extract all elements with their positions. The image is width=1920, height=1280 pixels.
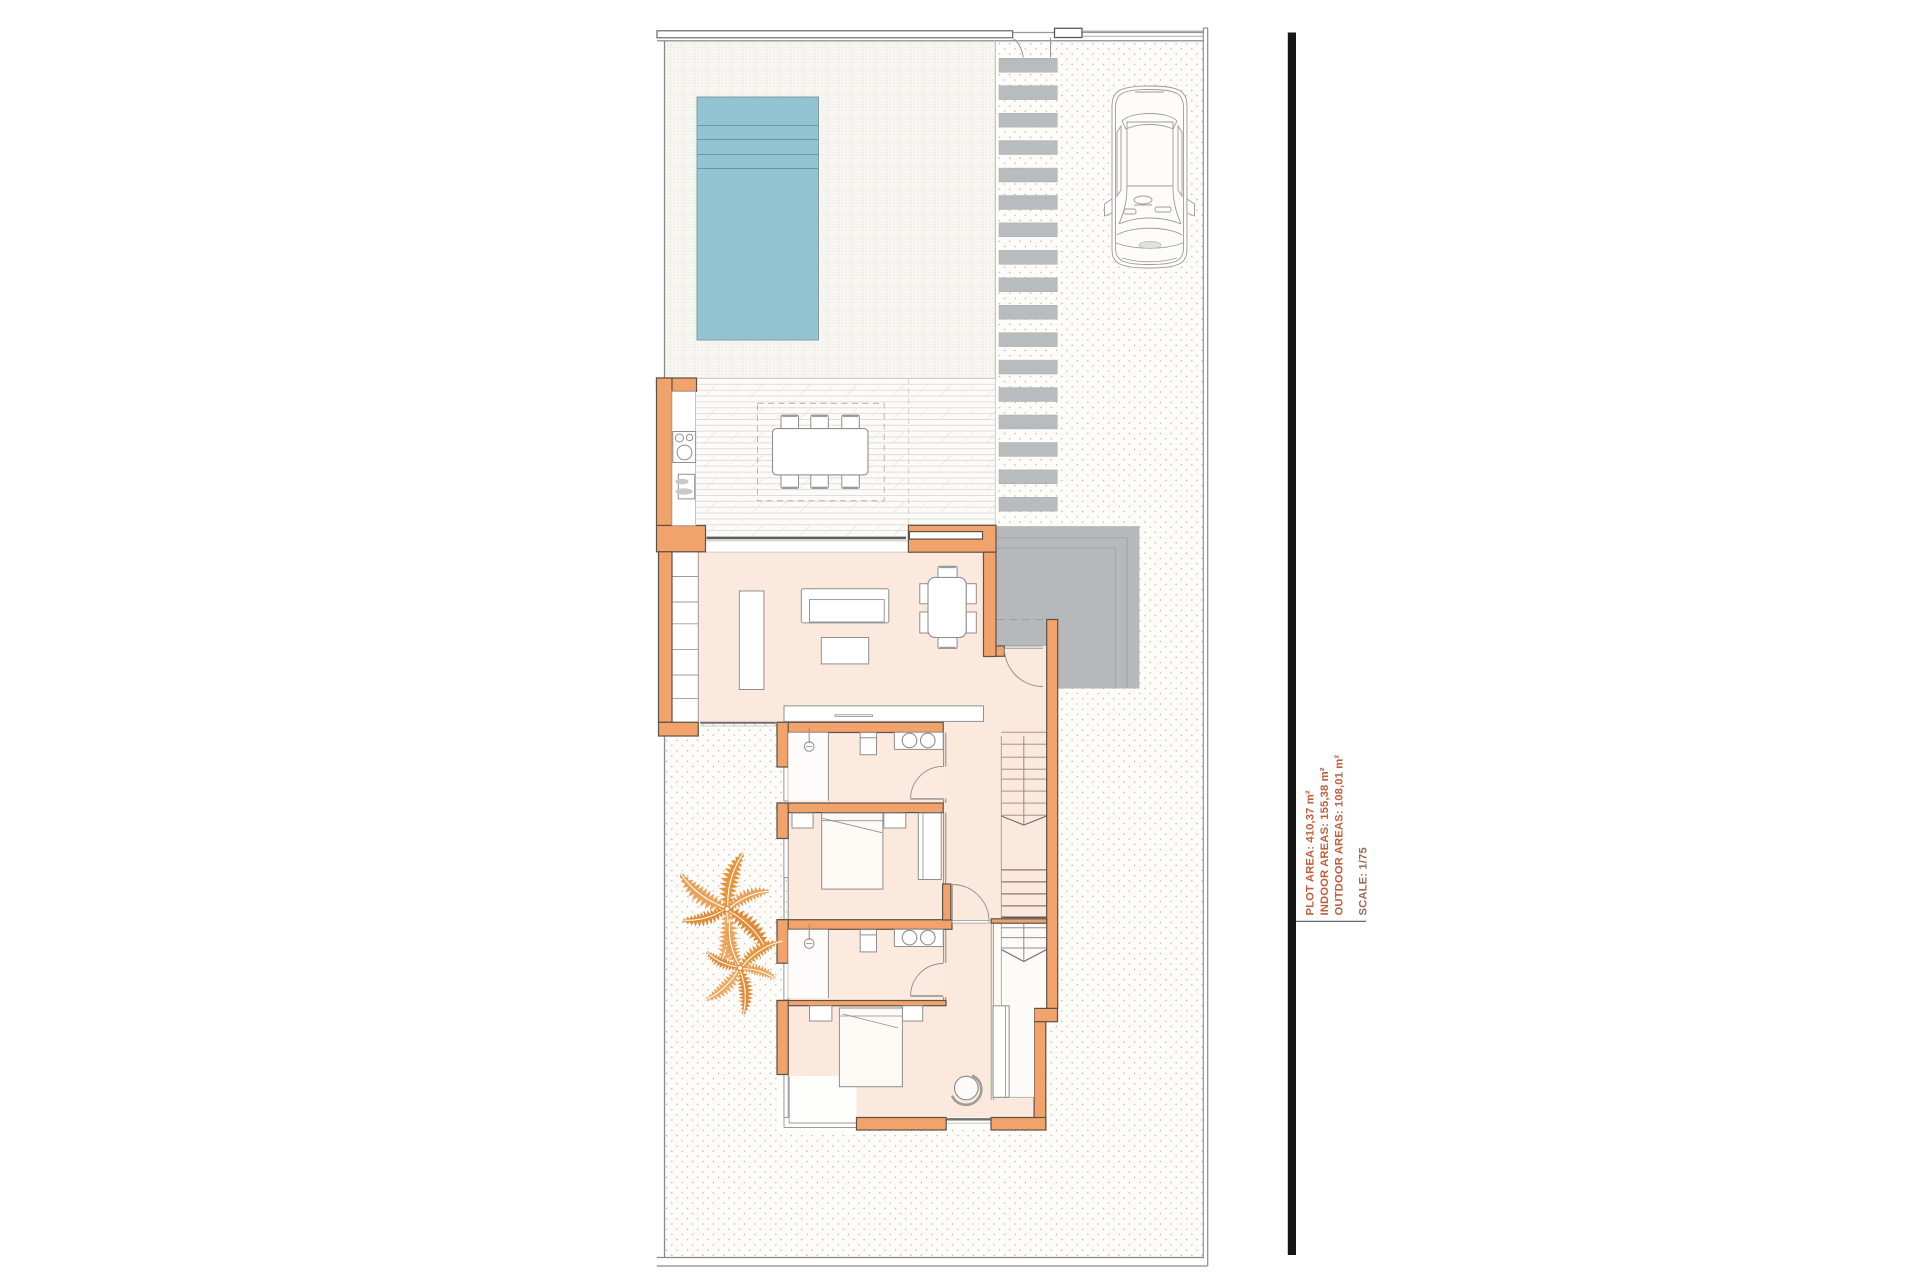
svg-text:OUTDOOR AREAS: 108,01 m²: OUTDOOR AREAS: 108,01 m² xyxy=(1334,755,1346,916)
svg-text:SCALE: 1/75: SCALE: 1/75 xyxy=(1358,847,1370,915)
svg-text:INDOOR AREAS: 155,38 m²: INDOOR AREAS: 155,38 m² xyxy=(1319,767,1331,915)
svg-text:PLOT AREA: 410,37 m²: PLOT AREA: 410,37 m² xyxy=(1305,790,1317,915)
